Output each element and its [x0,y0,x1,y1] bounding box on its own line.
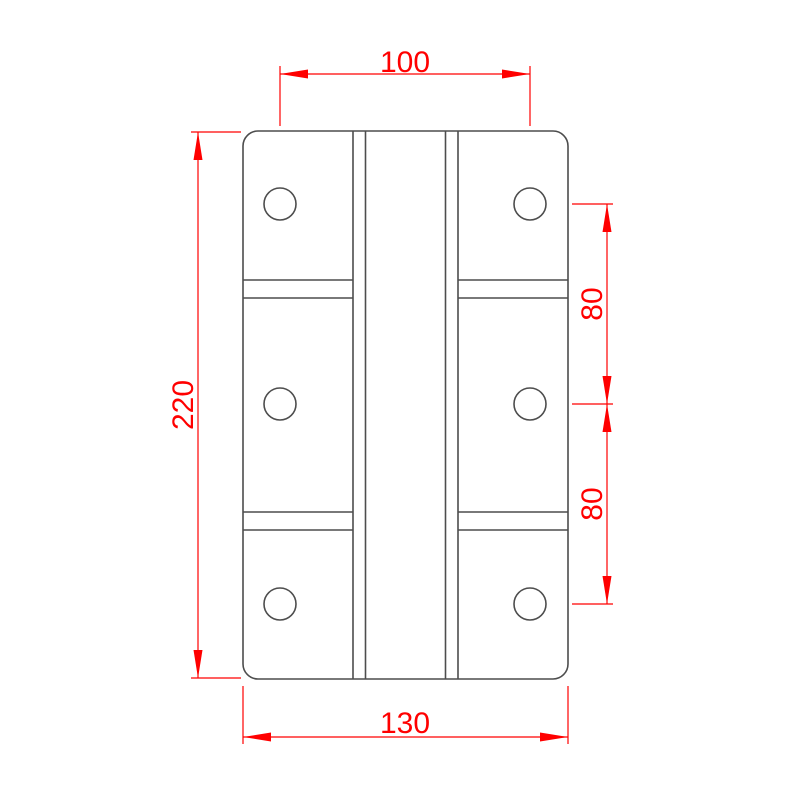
dimension-value-right-upper: 80 [576,287,609,320]
dimension-value-top: 100 [380,46,430,79]
dimension-right-lower-spacing: 80 [572,404,613,604]
arrowhead-down [603,576,612,604]
arrowhead-up [194,132,203,160]
arrowhead-left [243,733,271,742]
arrowhead-right [540,733,568,742]
hole-middle-right [514,388,546,420]
technical-drawing-canvas: 100 220 80 80 [0,0,800,800]
plate-outline [243,131,568,679]
part-geometry [243,131,568,679]
arrowhead-down [603,376,612,404]
dimension-left-height: 220 [167,132,241,678]
dimension-value-left: 220 [167,380,200,430]
dimension-top-width: 100 [280,46,530,126]
arrowhead-up [603,204,612,232]
hole-bottom-right [514,588,546,620]
dimension-right-upper-spacing: 80 [572,204,613,404]
hole-top-left [264,188,296,220]
arrowhead-left [280,70,308,79]
hole-top-right [514,188,546,220]
hole-bottom-left [264,588,296,620]
dimension-value-right-lower: 80 [576,487,609,520]
plate-drawing: 100 220 80 80 [0,0,800,800]
hole-middle-left [264,388,296,420]
dimension-bottom-width: 130 [243,686,568,744]
dimension-value-bottom: 130 [380,707,430,740]
arrowhead-down [194,650,203,678]
arrowhead-up [603,404,612,432]
arrowhead-right [502,70,530,79]
